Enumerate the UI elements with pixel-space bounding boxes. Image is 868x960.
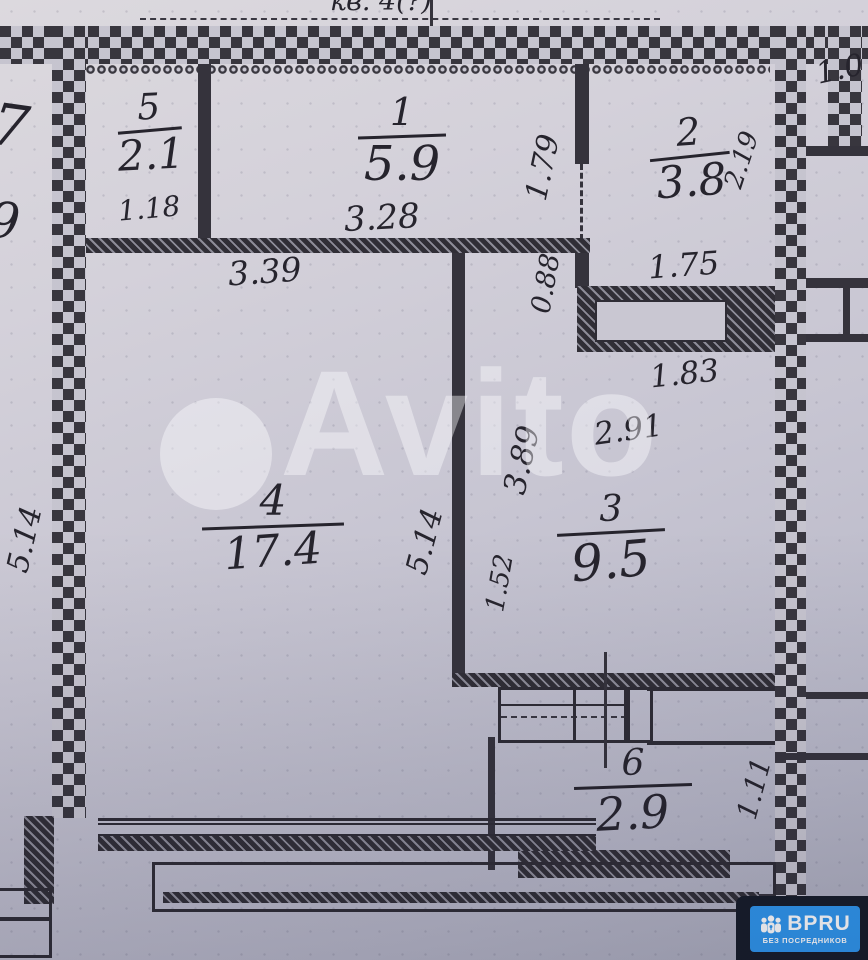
room-2-area: 3.8 bbox=[655, 155, 728, 208]
avito-watermark-text: Avito bbox=[280, 348, 659, 498]
window-sill-line bbox=[501, 704, 627, 706]
wall-neighbor-v1 bbox=[843, 286, 850, 338]
dim-room2-nook-height: 0.88 bbox=[524, 241, 568, 325]
wall-room3-bottom bbox=[452, 673, 775, 687]
top-note-partial: кв. 4(?) bbox=[330, 0, 432, 17]
bpru-people-icon bbox=[759, 914, 783, 934]
bpru-tagline: БЕЗ ПОСРЕДНИКОВ bbox=[763, 936, 848, 945]
room-4-area: 17.4 bbox=[222, 525, 323, 580]
wall-neighbor-h3 bbox=[806, 334, 868, 342]
room-5-number: 5 bbox=[136, 87, 161, 128]
balcony-hatch bbox=[163, 892, 759, 903]
wall-neighbor-h5 bbox=[775, 753, 868, 760]
dim-room4-right-height: 5.14 bbox=[396, 494, 453, 590]
window-room4-hatch bbox=[98, 836, 596, 851]
wall-neighbor-h2 bbox=[806, 278, 868, 288]
bpru-badge: BPRU БЕЗ ПОСРЕДНИКОВ bbox=[750, 906, 860, 952]
bpru-brand-text: BPRU bbox=[787, 913, 851, 934]
dim-room6-height: 1.11 bbox=[727, 744, 781, 834]
wall-right bbox=[775, 26, 806, 908]
corner-rect-1 bbox=[0, 888, 52, 920]
wall-horizontal-main bbox=[86, 238, 590, 253]
dim-room1-width: 3.28 bbox=[343, 196, 421, 240]
dim-room1-right-height: 1.79 bbox=[517, 120, 570, 215]
room-1-number: 1 bbox=[390, 92, 414, 134]
window-mullion bbox=[573, 690, 576, 740]
top-dashed-line bbox=[140, 18, 660, 20]
room-6-number: 6 bbox=[622, 744, 645, 784]
wall-neighbor-h4 bbox=[806, 692, 868, 699]
room-label-1: 1 5.9 bbox=[352, 92, 452, 191]
dim-room2-width: 1.75 bbox=[647, 244, 721, 287]
wall-room1-room2-top bbox=[575, 64, 589, 164]
room-label-6: 6 2.9 bbox=[572, 744, 694, 838]
window-room4 bbox=[98, 818, 596, 837]
room-3-area: 9.5 bbox=[569, 530, 653, 592]
room-label-5: 5 2.1 bbox=[102, 86, 199, 180]
dim-room3-lower-height: 1.52 bbox=[479, 543, 522, 623]
wall-neighbor-h1 bbox=[806, 146, 868, 156]
room-5-area: 2.1 bbox=[117, 130, 186, 180]
wall-top-scallops bbox=[74, 64, 770, 75]
window-dashed-line bbox=[501, 716, 627, 718]
wall-left bbox=[52, 26, 86, 818]
corner-rect-2 bbox=[0, 918, 52, 958]
balcony-rect bbox=[152, 862, 776, 912]
wall-top bbox=[0, 26, 868, 64]
room-2-number: 2 bbox=[675, 111, 702, 154]
vent-shaft-inner bbox=[595, 300, 727, 342]
partial-label-9: 9 bbox=[0, 190, 23, 251]
wall-neighbor-column bbox=[828, 26, 862, 152]
wall-room5-room1 bbox=[198, 64, 211, 240]
wall-room6-top-double bbox=[647, 687, 775, 745]
dim-room4-top-width: 3.39 bbox=[227, 249, 303, 293]
room-1-area: 5.9 bbox=[364, 138, 440, 191]
wall-room1-room2-dashed bbox=[580, 164, 583, 240]
floorplan-photo: кв. 4(?) 7 9 1.0 5 2.1 1.18 1 5.9 3.28 1… bbox=[0, 0, 868, 960]
window-block-room3 bbox=[498, 687, 630, 743]
avito-watermark-circle bbox=[160, 398, 272, 510]
dim-room5-width: 1.18 bbox=[117, 189, 182, 227]
dim-room4-left-height: 5.14 bbox=[0, 492, 52, 588]
room-6-area: 2.9 bbox=[595, 786, 671, 840]
partial-label-7: 7 bbox=[0, 90, 33, 162]
